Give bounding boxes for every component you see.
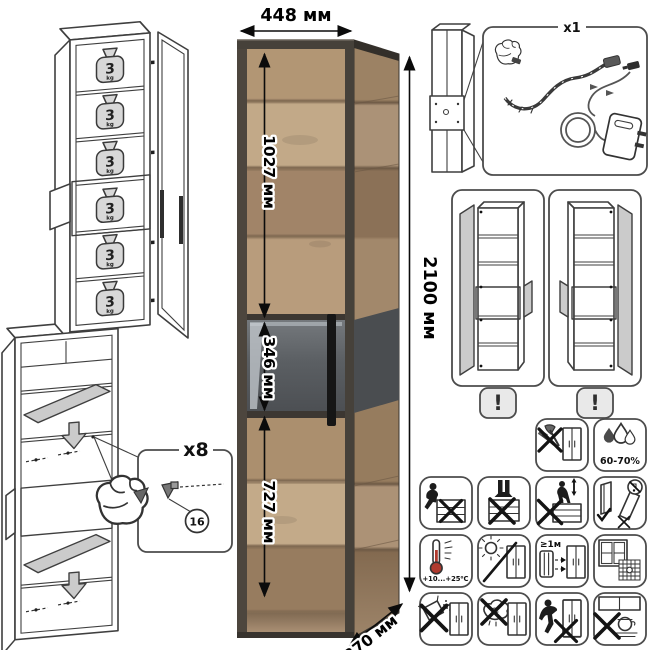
- temperature-label: +10...+25⁰C: [422, 575, 468, 583]
- icon-no-climbing: [536, 477, 588, 529]
- door-panel-right: [618, 205, 632, 375]
- humidity-label: 60-70%: [600, 456, 640, 467]
- icon-ventilate-room: [594, 535, 646, 587]
- svg-text:kg: kg: [106, 215, 114, 222]
- icon-keep-away-from-stove: [594, 593, 646, 645]
- cabinet-right-frame: [345, 40, 354, 636]
- shelf-pin-count-label: x8: [183, 439, 208, 461]
- led-kit-count-label: x1: [563, 21, 580, 36]
- thermometer-bulb: [431, 562, 443, 574]
- icon-humidity: 60-70%: [594, 419, 646, 471]
- icon-keep-distance-from-heater: ≥1м: [536, 535, 588, 587]
- svg-text:kg: kg: [106, 168, 114, 175]
- icon-no-abrasive-cleaners: [419, 593, 472, 645]
- display-dimension-label: 346 мм: [260, 336, 278, 399]
- warning-mark: !: [590, 391, 600, 415]
- lower-door-dimension-label: 727 мм: [260, 480, 278, 543]
- width-dimension-label: 448 мм: [260, 6, 331, 26]
- icon-no-dragging: [536, 593, 588, 645]
- icon-no-direct-sunlight: [478, 535, 530, 587]
- led-cabinet-thumbnail: [430, 24, 483, 172]
- door-option-left-hinge: !: [452, 190, 544, 418]
- icon-no-impact-tools: [536, 419, 588, 471]
- door-panel-left: [460, 205, 474, 375]
- icon-no-sitting: [420, 477, 472, 529]
- icon-no-wet-cloth: [478, 593, 530, 645]
- instruction-drawing: 3 kg 3 kg 3 kg 3 kg 3 kg: [0, 0, 650, 650]
- icon-temperature-range: +10...+25⁰C: [420, 535, 472, 587]
- load-unit: kg: [106, 75, 114, 82]
- open-glass-door: [158, 32, 188, 338]
- load-capacity-figure: 3 kg 3 kg 3 kg 3 kg 3 kg: [50, 20, 188, 347]
- door-option-right-hinge: !: [549, 190, 641, 418]
- care-icons-grid: 60-70%: [419, 419, 646, 645]
- svg-text:kg: kg: [106, 122, 114, 129]
- cabinet-handle: [327, 314, 336, 426]
- height-dimension-label: 2100 мм: [419, 256, 439, 339]
- warning-mark: !: [493, 391, 503, 415]
- icon-no-standing: [478, 477, 530, 529]
- svg-text:kg: kg: [106, 262, 114, 269]
- svg-text:kg: kg: [106, 308, 114, 315]
- led-kit-figure: x1: [430, 20, 649, 175]
- icon-transport-upright-only: [594, 477, 646, 529]
- upper-door-dimension-label: 1027 мм: [260, 135, 278, 209]
- shelf-installation-figure: x8 16: [2, 319, 232, 650]
- part-number: 16: [189, 515, 205, 528]
- cabinet-left-frame: [237, 40, 247, 636]
- assembly-instruction-page: 3 kg 3 kg 3 kg 3 kg 3 kg: [0, 0, 650, 650]
- heater-distance-label: ≥1м: [540, 540, 561, 550]
